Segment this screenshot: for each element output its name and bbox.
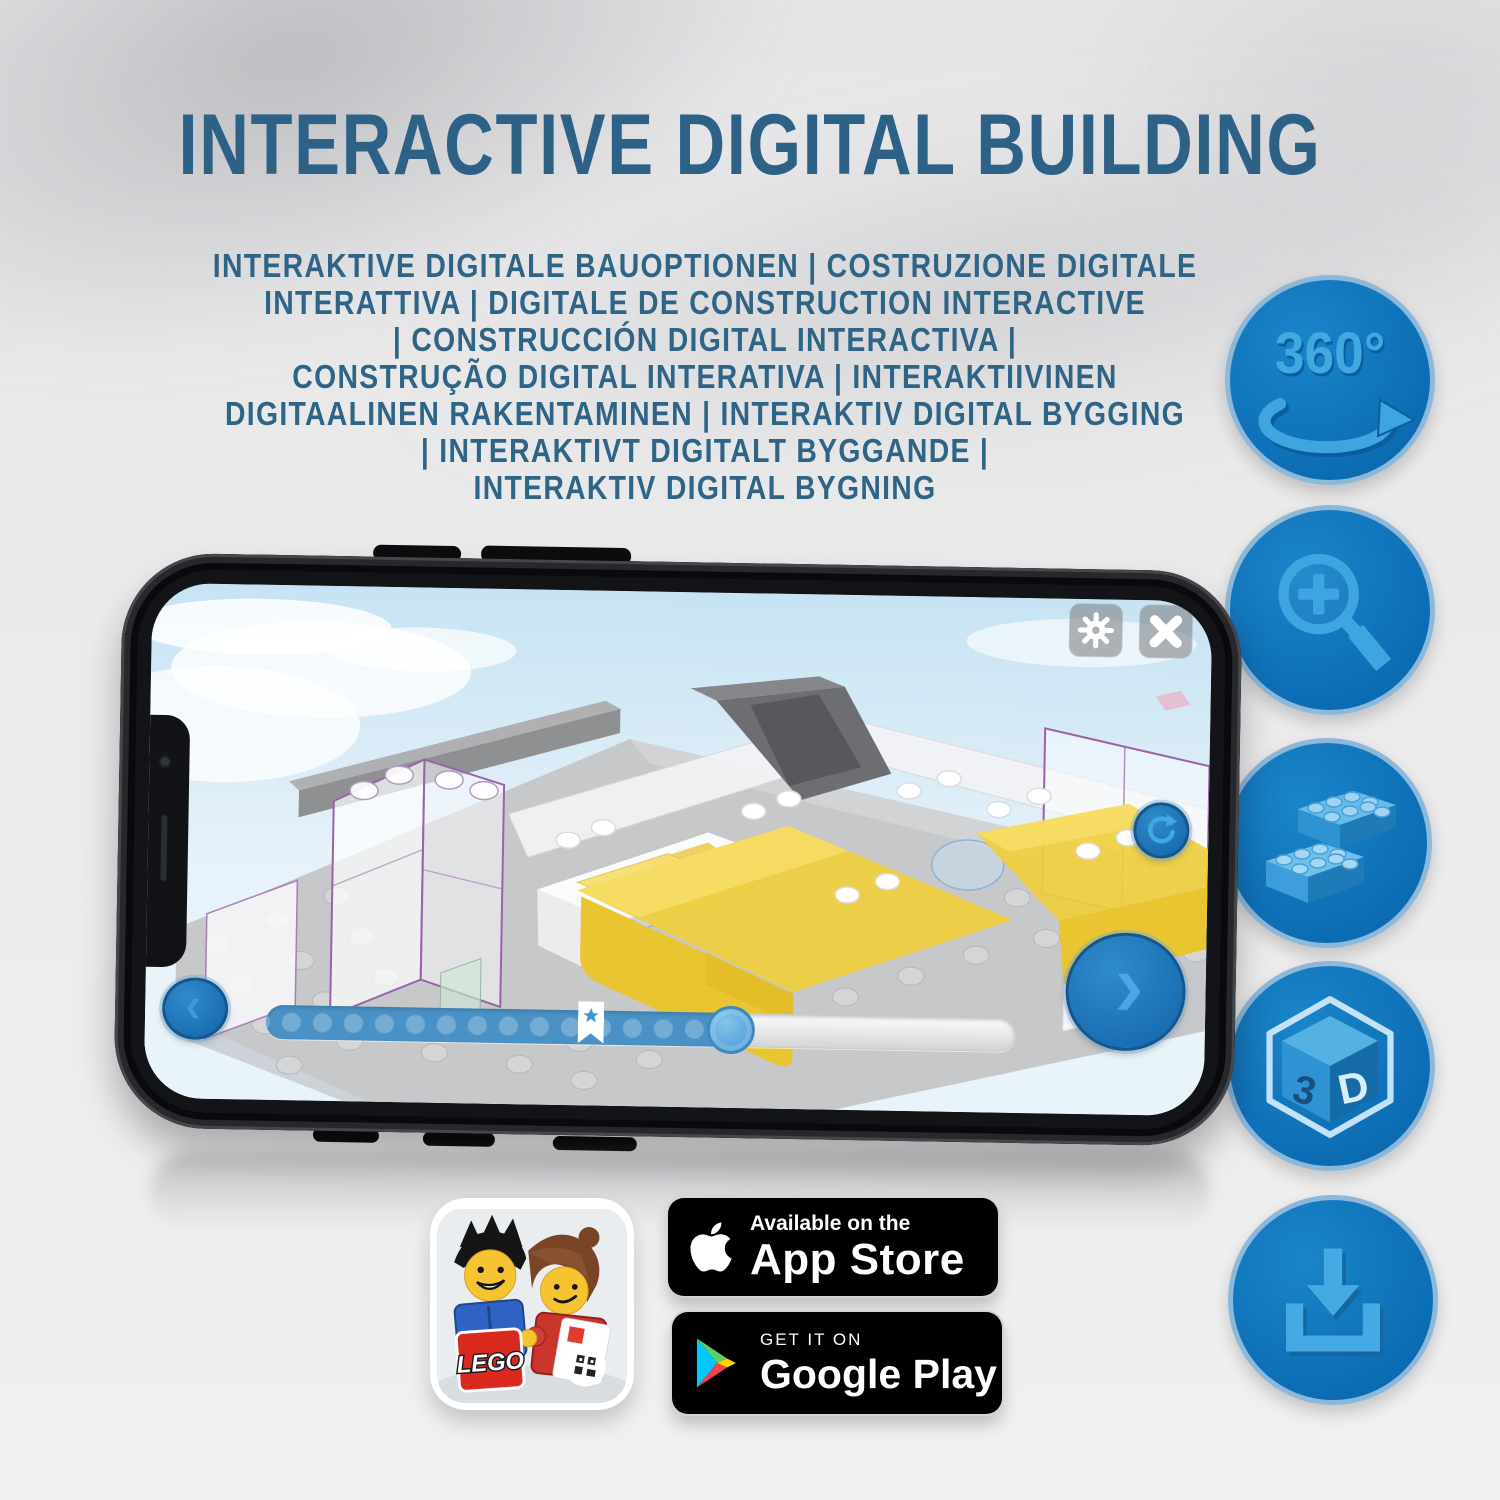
page-title: INTERACTIVE DIGITAL BUILDING — [150, 96, 1350, 195]
bottom-button — [553, 1136, 637, 1151]
apple-icon — [688, 1219, 734, 1275]
subtitle-line: INTERATTIVA | DIGITALE DE CONSTRUCTION I… — [99, 284, 1312, 321]
bottom-button — [423, 1132, 495, 1147]
subtitle-block: INTERAKTIVE DIGITALE BAUOPTIONEN | COSTR… — [99, 247, 1312, 506]
earpiece-speaker — [160, 814, 167, 880]
phone-mockup — [113, 552, 1243, 1146]
camera-notch — [144, 714, 190, 967]
magnifier-glyph — [1262, 542, 1398, 678]
google-play-tagline: GET IT ON — [760, 1329, 997, 1351]
google-play-badge[interactable]: GET IT ON Google Play — [672, 1312, 1002, 1414]
chevron-left-icon — [182, 995, 208, 1021]
google-play-icon — [690, 1334, 744, 1392]
app-store-badge[interactable]: Available on the App Store — [668, 1198, 998, 1296]
subtitle-line: INTERAKTIVE DIGITALE BAUOPTIONEN | COSTR… — [99, 247, 1312, 284]
rotate-icon — [1143, 812, 1180, 849]
lego-app-artwork: LEGO — [437, 1205, 627, 1403]
subtitle-line: INTERAKTIV DIGITAL BYGNING — [99, 469, 1312, 506]
close-button[interactable] — [1138, 604, 1193, 659]
star-icon — [582, 1006, 600, 1024]
rotation-arrow — [1252, 376, 1418, 486]
360-rotation-icon: 360° — [1225, 275, 1435, 485]
app-store-title: App Store — [750, 1236, 965, 1284]
app-screen — [144, 583, 1213, 1116]
lego-app-icon[interactable]: LEGO — [430, 1198, 634, 1410]
subtitle-line: DIGITAALINEN RAKENTAMINEN | INTERAKTIV D… — [99, 395, 1312, 432]
front-camera — [158, 754, 171, 767]
gear-icon — [1076, 610, 1117, 651]
lego-logo-text: LEGO — [456, 1347, 526, 1379]
subtitle-line: | INTERAKTIVT DIGITALT BYGGANDE | — [99, 432, 1312, 469]
cube-glyph: 3 D — [1257, 993, 1403, 1139]
brick-stack-icon — [1222, 738, 1432, 948]
app-store-tagline: Available on the — [750, 1211, 965, 1236]
3d-cube-icon: 3 D — [1225, 961, 1435, 1171]
subtitle-line: | CONSTRUCCIÓN DIGITAL INTERACTIVA | — [99, 321, 1312, 358]
close-icon — [1147, 612, 1186, 651]
progress-thumb[interactable] — [706, 1006, 755, 1055]
bricks-glyph — [1252, 777, 1402, 909]
poster: INTERACTIVE DIGITAL BUILDING INTERAKTIVE… — [0, 0, 1500, 1500]
subtitle-line: CONSTRUÇÃO DIGITAL INTERATIVA | INTERAKT… — [99, 358, 1312, 395]
chevron-right-icon — [1101, 967, 1150, 1016]
google-play-title: Google Play — [760, 1351, 997, 1397]
download-icon — [1228, 1195, 1438, 1405]
zoom-in-icon — [1225, 505, 1435, 715]
download-glyph — [1270, 1237, 1396, 1363]
settings-button[interactable] — [1068, 603, 1123, 658]
